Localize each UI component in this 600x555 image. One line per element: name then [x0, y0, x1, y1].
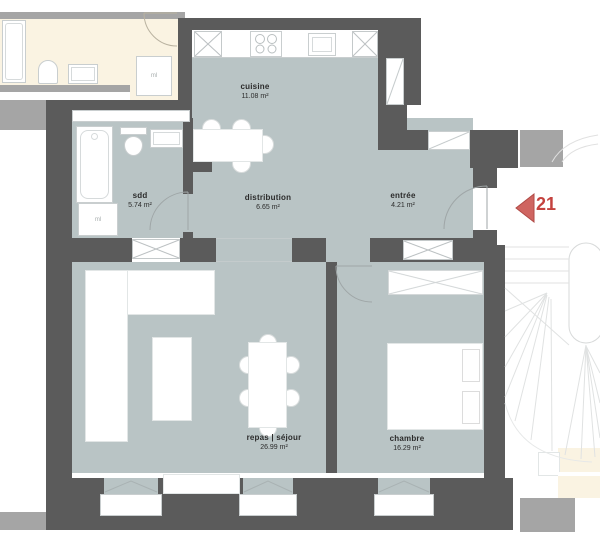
wall: [378, 105, 407, 150]
wall: [292, 238, 326, 262]
window-sill: [239, 494, 297, 516]
sideboard: [163, 474, 240, 494]
kitchen-sink-symbol: [308, 33, 336, 56]
staircase: [497, 233, 600, 463]
window-opening-icon: [104, 478, 158, 495]
chambre-wardrobe: [388, 270, 483, 295]
sdd-high-window: [72, 110, 190, 122]
neighbor-shower: [2, 20, 26, 83]
pillow: [462, 391, 480, 424]
wall: [378, 18, 421, 58]
neighbor-washing-machine: ml: [136, 56, 172, 96]
opening-distribution-repas: [216, 238, 292, 262]
neighbor-washing-machine-label: ml: [151, 73, 157, 79]
window-opening-icon: [243, 478, 293, 495]
kitchen-cabinet: [194, 31, 222, 57]
wall: [470, 130, 518, 168]
entree-wardrobe: [428, 131, 470, 150]
kitchen-cabinet: [352, 31, 378, 57]
wall: [46, 238, 132, 262]
neighbor-wall-bottomleft: [0, 512, 46, 530]
floor-plan: ml: [0, 0, 600, 555]
closet: [403, 240, 453, 260]
washing-machine-label: ml: [95, 217, 101, 223]
stove-burners-icon: [251, 32, 281, 56]
wall: [404, 130, 428, 150]
opening-chambre-door: [326, 238, 370, 262]
neighbor-wall-left: [0, 100, 48, 130]
door-swing-entree: [441, 183, 489, 231]
wall: [404, 58, 421, 105]
curved-wall-lines: [550, 118, 600, 163]
neighbor-toilet-symbol: [38, 60, 58, 84]
bathroom-sink-symbol: [150, 129, 183, 148]
washing-machine: ml: [78, 203, 118, 236]
door-swing-neighbor: [141, 11, 179, 49]
door-swing-chambre: [334, 264, 374, 304]
unit-marker-number: 21: [536, 194, 556, 215]
door-swing-sdd: [148, 190, 190, 232]
neighbor-wall-bottomright: [520, 498, 575, 532]
unit-marker-arrow-icon: [513, 192, 536, 224]
neighbor-counter-line: [558, 472, 600, 476]
pillow: [462, 349, 480, 382]
wall: [180, 238, 216, 262]
wall: [183, 118, 193, 194]
cuisine-side-window: [386, 58, 404, 105]
toilet-tank: [120, 127, 147, 135]
closet: [132, 239, 180, 259]
kitchen-table: [193, 129, 263, 162]
neighbor-sink-symbol: [68, 64, 98, 84]
stove-symbol: [250, 31, 282, 57]
window-opening-icon: [378, 478, 430, 495]
bathtub-symbol: [76, 126, 113, 203]
neighbor-wall-mid: [0, 85, 130, 92]
wall: [46, 100, 72, 530]
dining-table: [248, 342, 287, 428]
coffee-table: [152, 337, 192, 421]
sofa: [85, 270, 128, 442]
wall: [378, 58, 386, 105]
window-sill: [100, 494, 162, 516]
window-sill: [374, 494, 434, 516]
